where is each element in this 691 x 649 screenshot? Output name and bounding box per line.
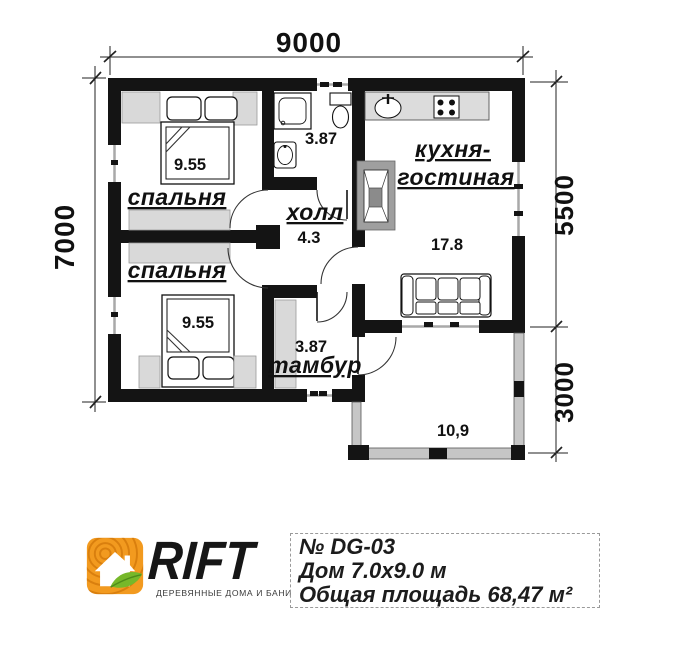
project-info-box: № DG-03 Дом 7.0x9.0 м Общая площадь 68,4… xyxy=(290,533,600,608)
dimension-right: 5500 3000 xyxy=(528,70,579,462)
kitchen-label-line1: кухня- xyxy=(415,136,491,162)
sofa xyxy=(401,274,491,317)
project-total-area: Общая площадь 68,47 м² xyxy=(299,583,599,607)
kitchen-counter xyxy=(365,92,489,120)
terrace-structure xyxy=(348,333,525,460)
fireplace xyxy=(357,161,395,230)
floor-plan-page: 9000 7000 5500 3000 спальня 9.55 спальня… xyxy=(0,0,691,649)
window-kitchen-bottom xyxy=(398,320,483,333)
bedroom1-area: 9.55 xyxy=(174,156,206,174)
terrace-area: 10,9 xyxy=(437,422,469,440)
project-size: Дом 7.0x9.0 м xyxy=(299,559,599,583)
vestibule-label: тамбур xyxy=(268,352,362,378)
bedroom2-furniture xyxy=(139,295,256,388)
dim-right-upper-value: 5500 xyxy=(549,174,579,236)
window-vestibule-bottom xyxy=(303,389,336,402)
kitchen-label-line2: гостиная xyxy=(397,164,514,190)
window-bathroom-top xyxy=(317,78,348,91)
window-bedroom1 xyxy=(108,141,121,186)
bedroom2-area: 9.55 xyxy=(182,314,214,332)
bathroom-area: 3.87 xyxy=(305,130,337,148)
hall-area: 4.3 xyxy=(298,229,321,247)
hall-label: холл xyxy=(285,199,344,225)
dimension-top: 9000 xyxy=(100,27,533,75)
dimension-left: 7000 xyxy=(49,66,106,412)
bedroom2-label: спальня xyxy=(128,257,227,283)
dim-left-value: 7000 xyxy=(49,204,80,270)
company-logo-icon xyxy=(86,537,144,600)
floor-plan-drawing: 9000 7000 5500 3000 спальня 9.55 спальня… xyxy=(0,0,691,520)
window-bedroom2 xyxy=(108,293,121,338)
dim-right-lower-value: 3000 xyxy=(549,361,579,423)
project-number: № DG-03 xyxy=(299,535,599,559)
kitchen-area: 17.8 xyxy=(431,236,463,254)
dim-top-value: 9000 xyxy=(276,27,342,58)
bedroom1-label: спальня xyxy=(128,184,227,210)
